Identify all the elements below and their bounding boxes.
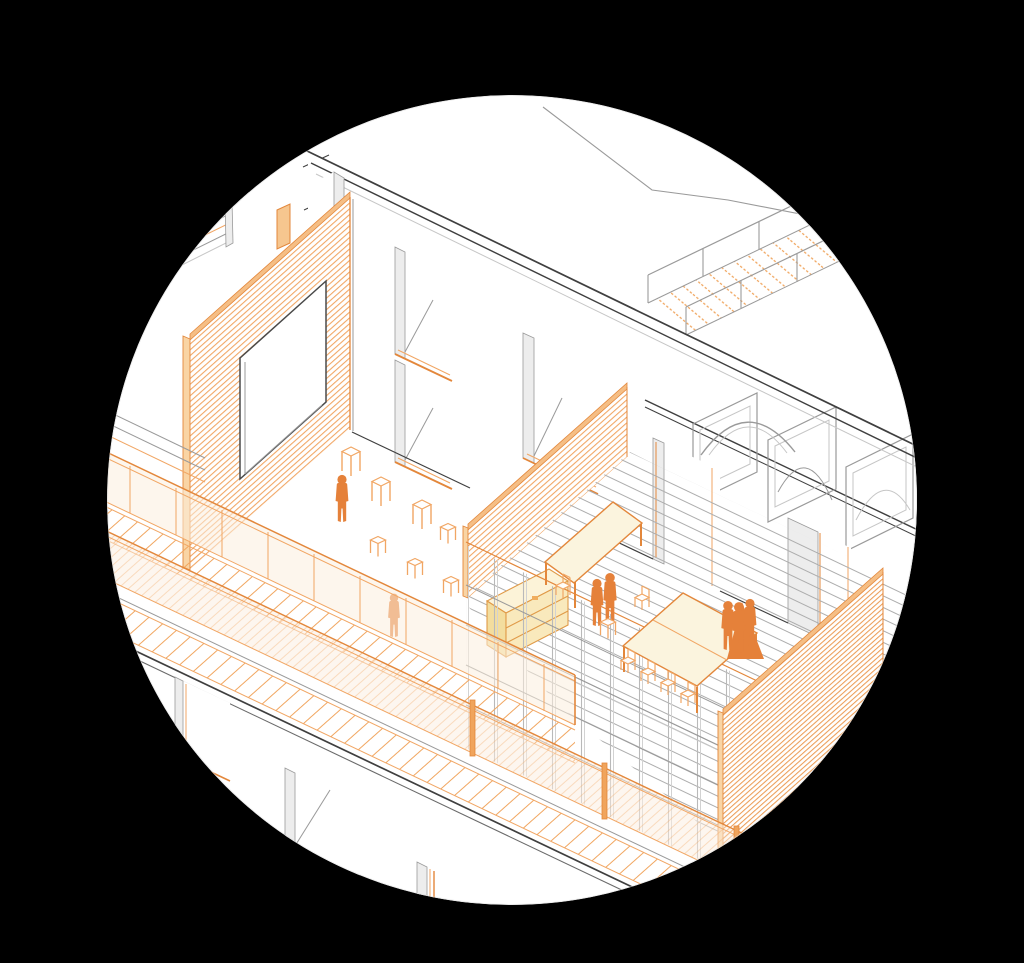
illustration-canvas: Circular axonometric architectural cutaw… — [0, 0, 1024, 963]
axonometric-illustration: Circular axonometric architectural cutaw… — [0, 0, 1024, 963]
